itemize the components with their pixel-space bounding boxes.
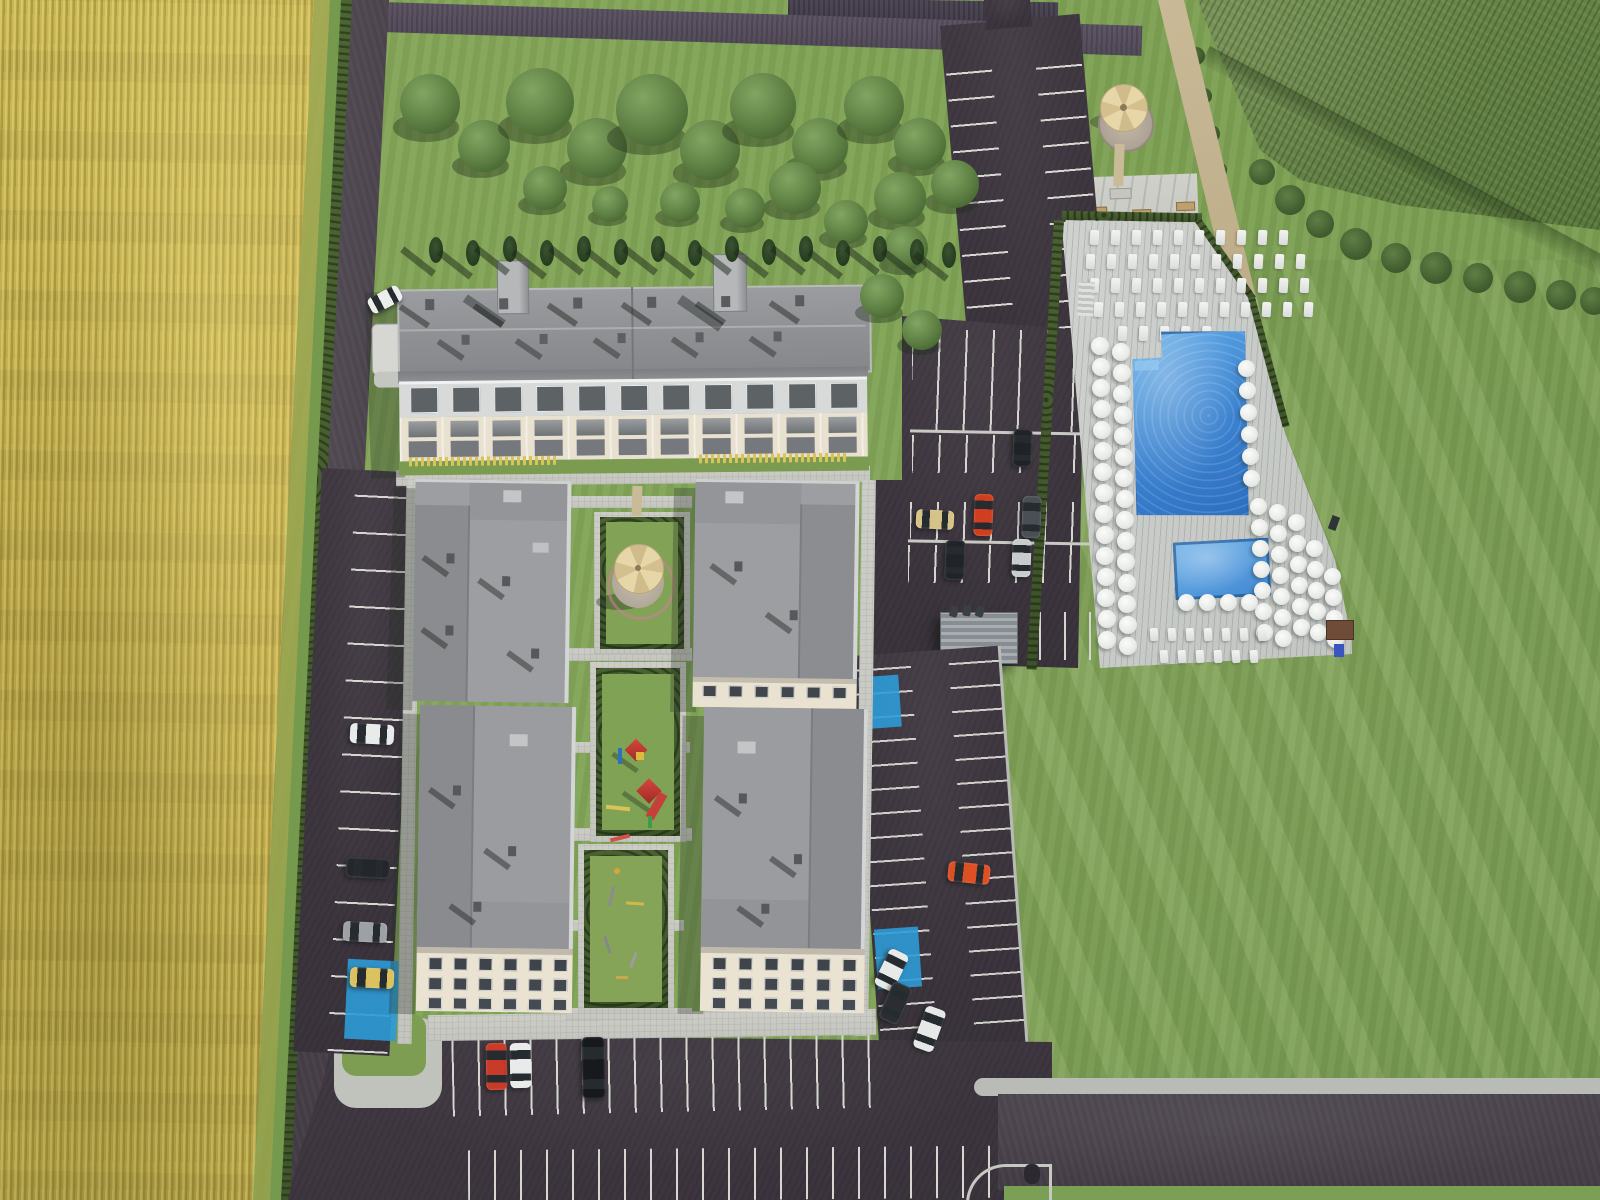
trees-north xyxy=(616,74,688,146)
van-black-south-row xyxy=(581,1037,605,1099)
pool-umbrella xyxy=(1116,490,1134,508)
window-4 xyxy=(503,958,517,971)
window-2 xyxy=(738,997,752,1009)
trees-north xyxy=(725,188,765,228)
pool-umbrella xyxy=(1116,511,1134,529)
courtyard-building-sw xyxy=(416,705,576,1013)
pool-umbrella xyxy=(1308,582,1325,599)
pool-umbrella xyxy=(1094,442,1112,460)
pool-umbrella xyxy=(1095,505,1113,523)
window-6 xyxy=(553,999,567,1011)
pool-umbrella xyxy=(1113,385,1131,403)
roof-vent-2 xyxy=(540,334,548,344)
car-beige-central-lot xyxy=(916,509,955,530)
trees-north xyxy=(769,162,821,214)
cypress-tree xyxy=(942,242,956,268)
sun-lounger xyxy=(1254,254,1264,269)
play-tower xyxy=(636,752,644,760)
sun-lounger xyxy=(1240,628,1249,642)
window-5 xyxy=(528,958,542,971)
sun-lounger xyxy=(1090,230,1100,245)
tree-row-field-edge xyxy=(1306,210,1334,238)
sun-lounger xyxy=(1222,628,1231,642)
sun-lounger xyxy=(1174,230,1184,245)
roof-vent-5 xyxy=(774,331,782,341)
pool-umbrella xyxy=(1113,364,1131,382)
pool-umbrella xyxy=(1238,360,1255,377)
car-orange-east-strip xyxy=(947,861,991,885)
central-lot-stalls-r2b xyxy=(908,545,1092,583)
courtyard-building-ne xyxy=(692,479,859,709)
roof-vent-6 xyxy=(795,295,804,306)
car-gray-west-parking xyxy=(343,921,388,943)
sun-lounger xyxy=(1199,302,1209,317)
pool-umbrella xyxy=(1117,532,1135,550)
trees-north xyxy=(660,182,700,222)
terrace-glass-8 xyxy=(704,384,732,410)
sun-lounger xyxy=(1178,302,1188,317)
pool-umbrella xyxy=(1095,484,1113,502)
roof-vent xyxy=(446,553,454,563)
sun-lounger xyxy=(1107,254,1117,269)
pool-bin xyxy=(1334,644,1344,657)
north-parking-stub xyxy=(984,0,1032,30)
pool-umbrella xyxy=(1092,379,1110,397)
window-3 xyxy=(755,686,769,698)
tree-row-field-edge xyxy=(1275,185,1305,215)
pool-umbrella xyxy=(1112,343,1130,361)
pool-umbrella xyxy=(1178,594,1195,611)
pool-umbrella xyxy=(1098,631,1116,649)
sun-lounger xyxy=(1220,302,1230,317)
tree-row-field-edge xyxy=(1340,228,1372,260)
pool-umbrella xyxy=(1094,463,1112,481)
window-3 xyxy=(764,958,778,971)
sun-lounger xyxy=(1186,628,1195,642)
sun-lounger xyxy=(1195,278,1205,293)
roof-vent-5 xyxy=(721,296,730,307)
pool-umbrella xyxy=(1098,610,1116,628)
window-5 xyxy=(816,998,830,1010)
sun-lounger xyxy=(1258,278,1268,293)
pool-umbrella xyxy=(1117,553,1135,571)
terrace-glass-7 xyxy=(662,384,690,410)
sun-lounger xyxy=(1118,326,1128,341)
sun-lounger xyxy=(1279,230,1289,245)
sun-lounger xyxy=(1170,254,1180,269)
pool-umbrella xyxy=(1250,498,1267,515)
courtyard-building-nw xyxy=(412,479,571,703)
pool-umbrella xyxy=(1307,561,1324,578)
trees-north xyxy=(824,200,868,244)
window-3 xyxy=(478,978,492,991)
trees-north xyxy=(400,74,460,134)
roof-unit xyxy=(533,543,549,553)
gazebo-finial xyxy=(1120,104,1127,111)
roof-vent-4 xyxy=(647,297,656,308)
roof-vent xyxy=(508,846,516,856)
window-6 xyxy=(842,999,856,1011)
gazebo-path xyxy=(1113,144,1124,186)
roof-vent-4 xyxy=(696,332,704,342)
roof-vent xyxy=(761,904,769,914)
window-4 xyxy=(503,978,517,991)
trees-north xyxy=(592,186,628,222)
window-3 xyxy=(478,958,492,971)
window-5 xyxy=(528,978,542,991)
sun-lounger xyxy=(1237,230,1247,245)
window-5 xyxy=(816,958,830,971)
sun-lounger xyxy=(1237,278,1247,293)
pool-umbrella xyxy=(1239,382,1256,399)
window-1 xyxy=(428,997,442,1009)
sun-lounger xyxy=(1128,254,1138,269)
trees-north xyxy=(523,166,567,210)
sun-lounger xyxy=(1283,302,1293,317)
sun-lounger xyxy=(1212,254,1222,269)
sun-lounger xyxy=(1086,254,1096,269)
sun-lounger xyxy=(1157,302,1167,317)
window-4 xyxy=(781,686,795,698)
roof-unit xyxy=(737,741,755,753)
pool-umbrella xyxy=(1269,504,1286,521)
car-darkgray-central-lot xyxy=(1021,496,1041,539)
sun-lounger xyxy=(1258,230,1268,245)
tree-row-field-edge xyxy=(1546,280,1576,310)
sun-lounger xyxy=(1150,628,1159,642)
window-4 xyxy=(790,998,804,1010)
car-white-west-parking xyxy=(350,723,395,745)
pool-umbrella xyxy=(1114,406,1132,424)
roof-vent xyxy=(790,610,798,620)
play-bar-blue xyxy=(618,748,622,764)
pool-umbrella xyxy=(1114,427,1132,445)
pool-umbrella xyxy=(1288,514,1305,531)
window-2 xyxy=(738,977,752,990)
play-spring-toy xyxy=(614,868,620,874)
sun-lounger xyxy=(1232,650,1241,664)
pool-umbrella xyxy=(1310,624,1327,641)
pool-umbrella xyxy=(1254,582,1271,599)
roof-vent xyxy=(445,625,453,635)
tree-row-field-edge xyxy=(1504,271,1536,303)
pool-umbrella xyxy=(1097,589,1115,607)
sun-lounger xyxy=(1094,302,1104,317)
window-1 xyxy=(712,957,726,970)
roof-vent-1 xyxy=(462,335,470,345)
pool-umbrella xyxy=(1091,337,1109,355)
window-6 xyxy=(842,959,856,972)
bottom-stalls-row xyxy=(468,1146,1008,1200)
pool-umbrella xyxy=(1289,535,1306,552)
roof-vent xyxy=(794,854,802,864)
window-6 xyxy=(553,979,567,992)
window-6 xyxy=(553,959,567,972)
garden-fence xyxy=(409,456,559,467)
sun-lounger xyxy=(1168,628,1177,642)
roof-vent-1 xyxy=(425,299,434,310)
picnic-table xyxy=(1109,188,1131,200)
window-4 xyxy=(790,958,804,971)
pool-umbrella xyxy=(1115,448,1133,466)
roof-dark-wing xyxy=(417,705,474,948)
pool-umbrella xyxy=(1293,619,1310,636)
fitness-bar xyxy=(616,976,628,979)
roof-vent xyxy=(739,793,747,803)
sun-lounger xyxy=(1300,278,1310,293)
pool-umbrella xyxy=(1241,594,1258,611)
tree-row-field-edge xyxy=(1381,243,1411,273)
sun-lounger xyxy=(1304,302,1314,317)
panel-fitness-lawn xyxy=(590,856,662,1002)
pool-umbrella xyxy=(1097,568,1115,586)
terrace-glass-2 xyxy=(452,387,480,413)
pool-umbrella xyxy=(1290,556,1307,573)
window-4 xyxy=(790,978,804,991)
pool-umbrella xyxy=(1115,469,1133,487)
pool-umbrella xyxy=(1306,540,1323,557)
sun-lounger xyxy=(1132,278,1142,293)
pool-umbrella xyxy=(1292,598,1309,615)
roof-dark-wing xyxy=(799,504,859,679)
car-black-central-lot-south xyxy=(944,540,965,581)
garden-fence xyxy=(699,453,849,464)
sun-lounger xyxy=(1111,278,1121,293)
bench xyxy=(1176,201,1195,211)
roof-vent xyxy=(734,561,742,571)
sun-lounger xyxy=(1178,650,1187,664)
gazebo-court-finial xyxy=(635,565,641,571)
terrace-glass-9 xyxy=(746,384,774,410)
car-silver-central-lot xyxy=(1011,539,1031,578)
window-2 xyxy=(453,957,467,970)
sun-lounger xyxy=(1139,326,1149,341)
east-road xyxy=(998,1094,1600,1190)
pool-umbrella xyxy=(1119,637,1137,655)
window-5 xyxy=(528,998,542,1010)
window-4 xyxy=(503,998,517,1010)
pool-umbrella xyxy=(1272,567,1289,584)
window-6 xyxy=(842,979,856,992)
sun-lounger xyxy=(1258,628,1267,642)
pool-umbrella xyxy=(1291,577,1308,594)
window-1 xyxy=(712,977,726,990)
roof-vent xyxy=(473,902,481,912)
gazebo-court-path xyxy=(631,486,642,516)
roof-vent-2 xyxy=(499,298,508,309)
sun-lounger xyxy=(1195,230,1205,245)
pool-umbrella xyxy=(1096,526,1114,544)
drain-patch xyxy=(1024,1164,1040,1184)
pool-umbrella xyxy=(1271,546,1288,563)
window-3 xyxy=(478,998,492,1010)
pool-umbrella xyxy=(1092,358,1110,376)
pool-umbrella xyxy=(1093,421,1111,439)
pool-umbrella xyxy=(1118,595,1136,613)
play-pole-green xyxy=(648,816,652,828)
pool-umbrella xyxy=(1199,594,1216,611)
trees-north xyxy=(844,76,904,136)
pool-umbrella xyxy=(1220,594,1237,611)
trees-north xyxy=(931,160,979,208)
sun-lounger xyxy=(1279,278,1289,293)
roof-dark-wing xyxy=(809,708,868,949)
sun-lounger xyxy=(1111,230,1121,245)
terrace-glass-3 xyxy=(494,386,522,412)
tree-row-field-edge xyxy=(1580,287,1600,315)
trees-north xyxy=(902,310,942,350)
car-red-south-row xyxy=(486,1043,508,1090)
roof-dark-wing xyxy=(412,505,469,702)
tree-row-field-edge xyxy=(1420,252,1452,284)
window-2 xyxy=(729,685,743,697)
terrace-glass-1 xyxy=(410,387,438,413)
window-1 xyxy=(428,957,442,970)
sun-lounger xyxy=(1216,230,1226,245)
central-lot-stalls-r1b xyxy=(912,435,1092,473)
car-white-south-row xyxy=(510,1043,532,1088)
roof-step xyxy=(695,479,802,524)
sun-lounger xyxy=(1233,254,1243,269)
window-5 xyxy=(807,686,821,698)
trees-north xyxy=(894,118,946,170)
roof-vent-3 xyxy=(618,333,626,343)
sun-lounger xyxy=(1250,650,1259,664)
sun-lounger xyxy=(1262,302,1272,317)
roof-vent xyxy=(531,649,539,659)
pool-umbrella xyxy=(1118,574,1136,592)
sun-lounger xyxy=(1115,302,1125,317)
window-1 xyxy=(712,997,726,1009)
pool-umbrella xyxy=(1274,609,1291,626)
car-yellow-disabled-spot xyxy=(350,967,395,989)
grass-below-east-road xyxy=(1004,1186,1600,1200)
terrace-glass-5 xyxy=(578,385,606,411)
trees-north xyxy=(730,73,796,139)
pool-umbrella xyxy=(1309,603,1326,620)
pool-umbrella xyxy=(1252,540,1269,557)
window-3 xyxy=(764,978,778,991)
window-1 xyxy=(428,977,442,990)
sun-lounger xyxy=(1204,628,1213,642)
pool-umbrella xyxy=(1325,589,1342,606)
sun-lounger xyxy=(1216,278,1226,293)
window-2 xyxy=(453,977,467,990)
pool-umbrella xyxy=(1096,547,1114,565)
pool-umbrella xyxy=(1242,448,1259,465)
sun-lounger xyxy=(1196,650,1205,664)
terrace-glass-6 xyxy=(620,385,648,411)
main-building xyxy=(397,279,869,478)
pool-umbrella xyxy=(1241,426,1258,443)
pool-umbrella xyxy=(1253,561,1270,578)
window-2 xyxy=(738,957,752,970)
pool-umbrella xyxy=(1251,519,1268,536)
trees-north xyxy=(506,68,574,136)
car-black-central-lot-north xyxy=(1012,429,1032,468)
pool-umbrella xyxy=(1273,588,1290,605)
roof-unit xyxy=(510,734,528,746)
pool-umbrella xyxy=(1270,525,1287,542)
terrace-glass-11 xyxy=(830,383,858,409)
roof-step xyxy=(471,902,574,949)
sun-lounger xyxy=(1275,254,1285,269)
pool-step-shelf xyxy=(1135,360,1159,371)
trees-north xyxy=(874,172,926,224)
terrace-glass-10 xyxy=(788,383,816,409)
car-red-central-lot xyxy=(973,494,993,537)
sun-lounger xyxy=(1149,254,1159,269)
sun-lounger xyxy=(1241,302,1251,317)
sun-lounger xyxy=(1191,254,1201,269)
sun-lounger xyxy=(1160,650,1169,664)
roof-vent xyxy=(453,785,461,795)
window-1 xyxy=(703,685,717,697)
courtyard-building-se xyxy=(700,707,868,1013)
car-black-west-parking xyxy=(346,857,391,879)
roof-vent xyxy=(502,576,510,586)
trees-north xyxy=(860,274,904,318)
pool-bench xyxy=(1326,620,1354,640)
roof-vent-3 xyxy=(573,298,582,309)
sun-lounger xyxy=(1136,302,1146,317)
roof-unit xyxy=(503,490,521,502)
window-3 xyxy=(764,998,778,1010)
sun-lounger xyxy=(1174,278,1184,293)
aerial-site-render xyxy=(0,0,1600,1200)
window-2 xyxy=(453,997,467,1009)
window-6 xyxy=(833,687,847,699)
sun-lounger xyxy=(1296,254,1306,269)
pool-umbrella xyxy=(1093,400,1111,418)
window-5 xyxy=(816,978,830,991)
pool-umbrella xyxy=(1240,404,1257,421)
pool-umbrella xyxy=(1324,568,1341,585)
tree-row-field-edge xyxy=(1463,263,1493,293)
pool-umbrella xyxy=(1275,630,1292,647)
terrace-glass-4 xyxy=(536,386,564,412)
sun-lounger xyxy=(1153,278,1163,293)
roof-unit xyxy=(725,491,743,503)
sun-lounger xyxy=(1132,230,1142,245)
sun-lounger xyxy=(1153,230,1163,245)
pool-umbrella xyxy=(1243,470,1260,487)
gazebo-north xyxy=(1090,78,1160,188)
tree-row-field-edge xyxy=(1249,159,1275,185)
pool-umbrella xyxy=(1119,616,1137,634)
pool-steps xyxy=(1077,282,1095,317)
sun-lounger xyxy=(1214,650,1223,664)
